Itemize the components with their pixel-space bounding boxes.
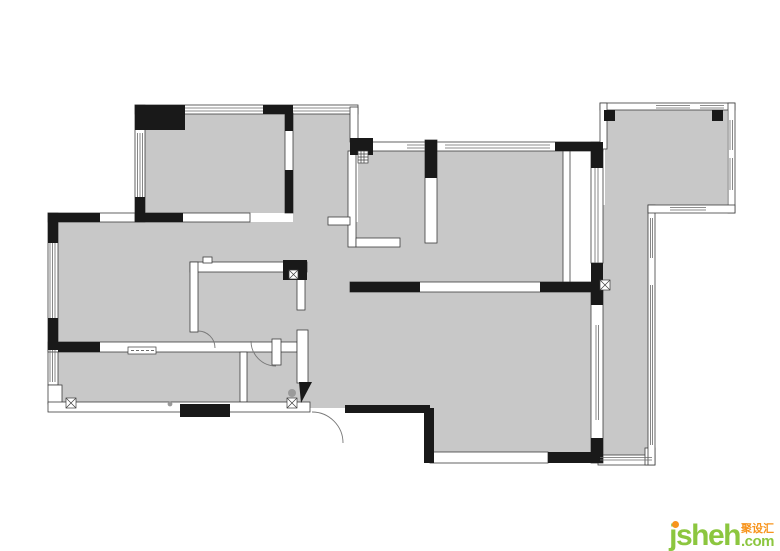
watermark-tld-text: .com [741,535,774,549]
drain-symbol [600,280,610,290]
room-living-main-west [305,292,433,408]
room-bedroom-2 [437,150,563,292]
room-kitchen [58,352,243,408]
vent-symbol [128,347,156,354]
drain-symbol [289,270,298,279]
drain-symbol [287,398,297,408]
room-living-left [58,222,300,352]
door-stop-dot [168,402,173,407]
room-corridor-top [293,113,352,222]
door-stop-dot [288,389,296,397]
watermark-right-stack: 聚设汇 .com [741,524,774,549]
watermark: jsheh 聚设汇 .com [669,523,774,549]
room-living-main [433,292,598,454]
drain-symbol [66,398,76,408]
watermark-brand-text: jsheh [669,523,740,549]
flue-symbol [358,151,368,163]
floor-plan-canvas [0,0,780,551]
room-balcony-right [603,205,648,455]
kitchen-door-leaf [272,339,281,365]
floor-plan-page: jsheh 聚设汇 .com [0,0,780,551]
entry-door-arc [312,412,343,443]
